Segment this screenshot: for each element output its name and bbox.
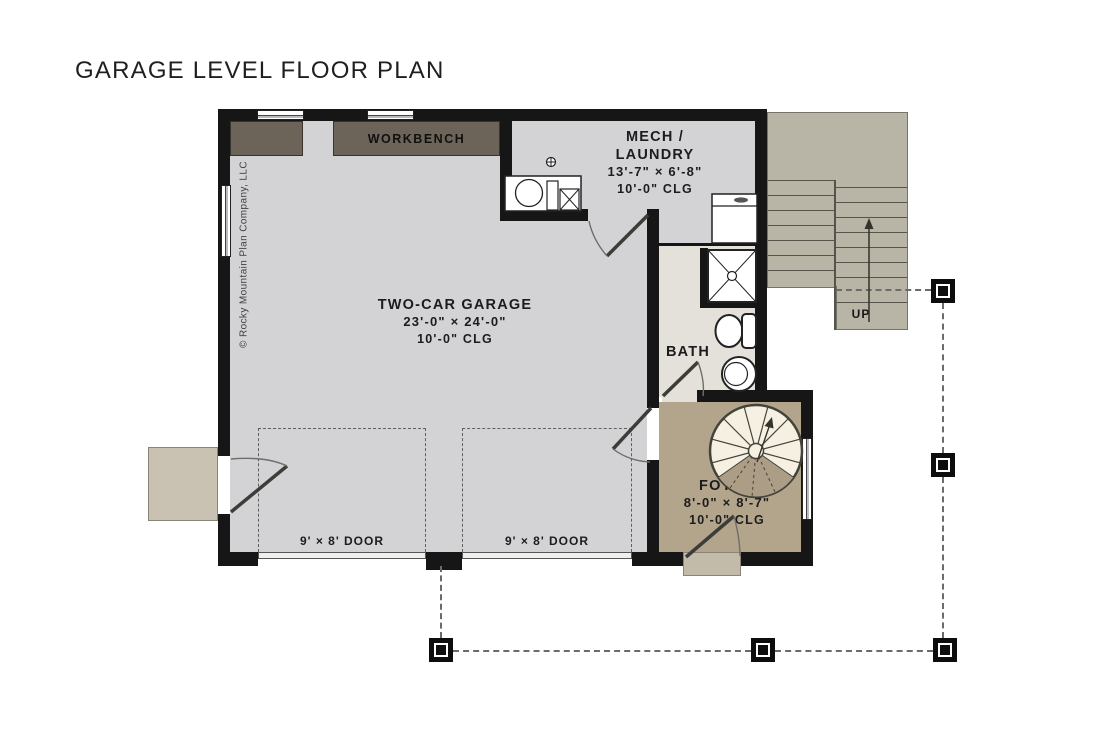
stair-tread: [768, 195, 836, 196]
garage-name: TWO-CAR GARAGE: [355, 296, 555, 314]
stair-tread: [836, 187, 907, 188]
porch-post: [931, 279, 955, 303]
window: [257, 110, 304, 120]
stair-tread: [836, 217, 907, 218]
stair-tread: [836, 247, 907, 248]
porch-line: [836, 289, 931, 291]
garage-door-right-label: 9' × 8' DOOR: [467, 534, 627, 548]
wall-mech-bottom: [500, 209, 588, 221]
workbench-label: WORKBENCH: [368, 132, 466, 146]
garage-ceiling: 10'-0" CLG: [355, 331, 555, 347]
washer-dryer-label: W/D: [712, 213, 757, 225]
mech-ceiling: 10'-0" CLG: [570, 181, 740, 197]
mech-dims: 13'-7" × 6'-8": [570, 164, 740, 181]
foyer-name: FOYER: [647, 477, 807, 495]
bath-name: BATH: [650, 343, 726, 361]
wall-mech-left: [500, 121, 512, 221]
porch-post: [429, 638, 453, 662]
window: [367, 110, 414, 120]
stairs-up-label: UP: [836, 307, 886, 321]
foyer-dims: 8'-0" × 8'-7": [647, 495, 807, 512]
porch-line: [942, 477, 944, 638]
workbench-main: WORKBENCH: [333, 121, 500, 156]
stair-tread: [836, 302, 907, 303]
spiral-up-label: UP: [777, 446, 807, 460]
stair-tread: [836, 277, 907, 278]
wall-garage-foyer-upper: [647, 209, 659, 408]
page-title: GARAGE LEVEL FLOOR PLAN: [75, 57, 445, 85]
wall-bottom-seg1: [218, 552, 258, 566]
stair-tread: [836, 232, 907, 233]
porch-post: [931, 453, 955, 477]
entry-stoop: [148, 447, 218, 521]
garage-door-panel-right: [462, 552, 632, 559]
stair-tread: [768, 225, 836, 226]
wall-bottom-pillar: [426, 552, 462, 570]
mech-room-label: MECH / LAUNDRY 13'-7" × 6'-8" 10'-0" CLG: [570, 128, 740, 197]
mech-name-line1: MECH /: [570, 128, 740, 146]
porch-post: [751, 638, 775, 662]
wall-foyer-top: [697, 390, 813, 402]
bath-door-floor-patch: [662, 390, 697, 402]
foyer-ceiling: 10'-0" CLG: [647, 512, 807, 528]
garage-room-label: TWO-CAR GARAGE 23'-0" × 24'-0" 10'-0" CL…: [355, 296, 555, 347]
stair-tread: [768, 240, 836, 241]
stair-tread: [768, 270, 836, 271]
foyer-room-label: FOYER 8'-0" × 8'-7" 10'-0" CLG: [647, 477, 807, 528]
stair-tread: [836, 262, 907, 263]
stair-tread: [836, 202, 907, 203]
window: [221, 185, 231, 257]
garage-door-panel-left: [258, 552, 426, 559]
foyer-stoop: [683, 552, 741, 576]
garage-dims: 23'-0" × 24'-0": [355, 314, 555, 331]
porch-line: [453, 650, 751, 652]
porch-post: [933, 638, 957, 662]
wall-bottom-seg3: [741, 552, 813, 566]
entry-door-opening: [218, 456, 230, 514]
workbench-left: [230, 121, 303, 156]
wall-shower-left: [700, 248, 708, 305]
porch-line: [942, 303, 944, 453]
porch-line: [775, 650, 933, 652]
floor-plan-canvas: GARAGE LEVEL FLOOR PLAN UP: [0, 0, 1100, 733]
wall-shower-bottom: [700, 301, 758, 308]
stair-tread: [768, 180, 836, 181]
bath-room-label: BATH: [650, 343, 726, 361]
porch-line: [440, 566, 442, 638]
stair-tread: [768, 210, 836, 211]
wall-right-upper: [755, 109, 767, 402]
mech-name-line2: LAUNDRY: [570, 146, 740, 164]
stair-tread: [768, 255, 836, 256]
wall-bottom-seg2: [632, 552, 683, 566]
garage-door-left-label: 9' × 8' DOOR: [262, 534, 422, 548]
copyright-text: © Rocky Mountain Plan Company, LLC: [239, 160, 250, 350]
wall-bath-top: [659, 243, 755, 246]
